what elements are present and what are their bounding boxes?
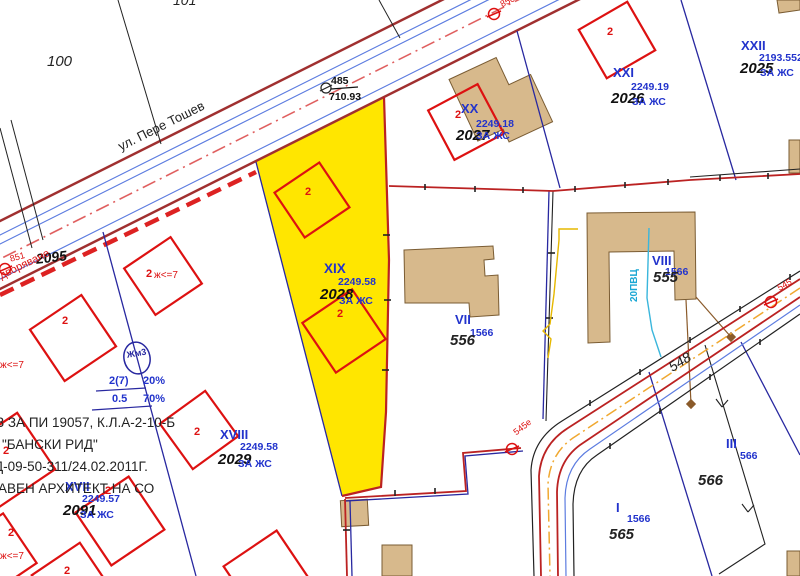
buildings	[340, 0, 800, 576]
parcel-xxii-roman: XXII	[741, 39, 766, 52]
parcel-100-number: 100	[47, 54, 72, 69]
parcel-xviii-use: ЗА ЖС	[238, 459, 272, 470]
parcel-viii-number: 555	[653, 270, 678, 285]
floors-label: 2	[455, 110, 461, 121]
survey-485-elevation: 710.93	[329, 92, 361, 103]
zoning-table-r2c2: 70%	[143, 394, 165, 405]
floors-label: 2	[337, 309, 343, 320]
survey-485-number: 485	[331, 76, 349, 87]
parcel-vii-roman: VII	[455, 313, 471, 326]
parcel-vii-number: 556	[450, 333, 475, 348]
regulation-dashed-line	[0, 172, 256, 295]
parcel-xvii-use: ЗА ЖС	[80, 510, 114, 521]
building-small-2	[382, 545, 412, 576]
parcel-xxii-use: ЗА ЖС	[760, 68, 794, 79]
floors-label: 2	[305, 187, 311, 198]
floors-label: 2	[3, 446, 9, 457]
parcel-i-number: 565	[609, 527, 634, 542]
annotation-line-2: "БАНСКИ РИД"	[2, 438, 98, 452]
pvc-pipe-label: 20ПВЦ	[630, 269, 640, 302]
parcel-iii-area: 566	[740, 451, 758, 462]
parcel-xxi-use: ЗА ЖС	[632, 97, 666, 108]
building-corner-se	[787, 551, 800, 576]
parcel-i-area: 1566	[627, 514, 650, 525]
floors-label: 2	[105, 486, 111, 497]
zoning-table-r1c2: 20%	[143, 376, 165, 387]
cadastral-map-canvas: ул. Пере Тошев 485 710.93 850 851 2095 д…	[0, 0, 800, 576]
floors-label: 2	[64, 566, 70, 576]
zoning-table-r1c1: 2(7)	[109, 376, 129, 387]
parcel-iii-number: 566	[698, 473, 723, 488]
building-edge-e	[789, 140, 800, 173]
building-parcel-vii	[404, 246, 499, 317]
parcel-xviii-roman: XVIII	[220, 428, 248, 441]
building-corner-ne	[777, 0, 800, 13]
parcel-xix-roman: XIX	[324, 262, 346, 276]
floors-label: 2	[194, 427, 200, 438]
height-limit-label-3: ж<=7	[154, 271, 178, 281]
floors-label: 2	[146, 269, 152, 280]
parcel-iii-roman: III	[726, 437, 737, 450]
parcel-xx-use: ЗА ЖС	[476, 131, 510, 142]
annotation-line-1: З ЗА ПИ 19057, К.Л.А-2-10-Б	[0, 416, 175, 430]
parcel-xx-roman: XX	[461, 102, 478, 115]
floors-label: 2	[607, 27, 613, 38]
floors-label: 2	[8, 528, 14, 539]
zoning-table-r2c1: 0.5	[112, 394, 127, 405]
parcel-i-roman: I	[616, 501, 620, 514]
height-limit-label-1: ж<=7	[0, 361, 24, 371]
parcel-101-number: 101	[173, 0, 196, 7]
floors-label: 2	[62, 316, 68, 327]
parcel-xix-use: ЗА ЖС	[339, 296, 373, 307]
height-limit-label-2: ж<=7	[0, 552, 24, 562]
parcel-xxi-roman: XXI	[613, 66, 634, 79]
utility-connectors	[686, 297, 735, 408]
annotation-line-4: АВЕН АРХИТЕКТ НА СО	[0, 482, 154, 496]
annotation-line-3: Д-09-50-311/24.02.2011Г.	[0, 460, 148, 474]
